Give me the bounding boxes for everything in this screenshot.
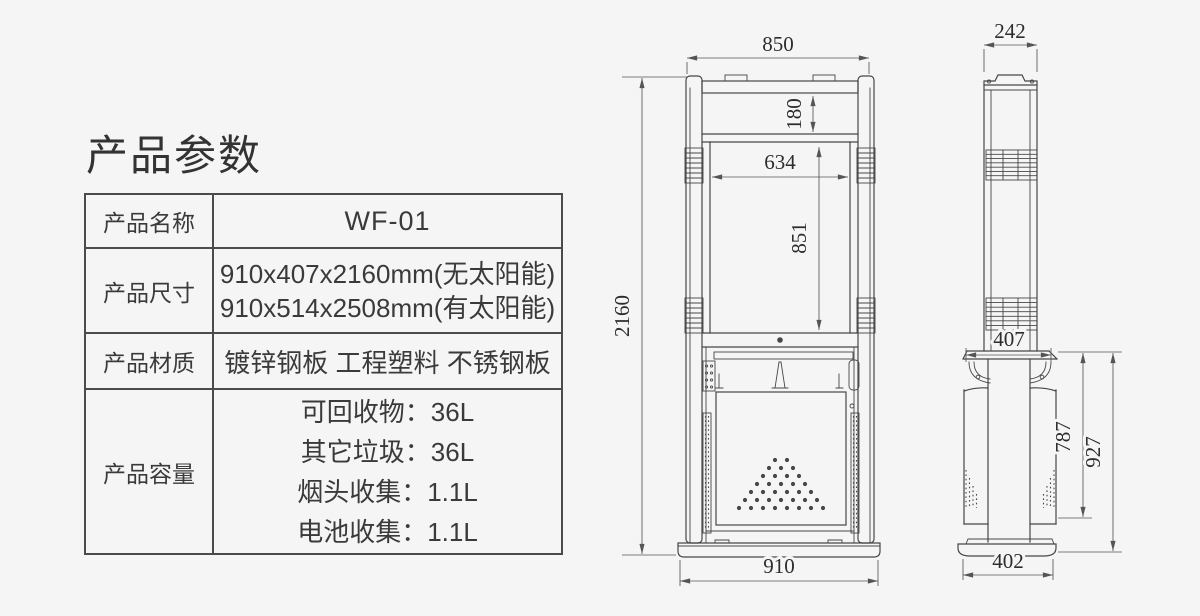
technical-drawing: 850 180 634 851 2160 910 <box>600 0 1200 616</box>
perforation-strip-left <box>966 470 977 508</box>
spec-value-capacity-4: 电池收集：1.1L <box>218 512 557 552</box>
side-dimensions: 242 407 787 927 402 <box>963 19 1122 580</box>
vent-slats-side <box>986 150 1037 330</box>
dim-top-depth: 242 <box>994 19 1026 43</box>
table-row-name: 产品名称 WF-01 <box>85 194 562 248</box>
page-title: 产品参数 <box>86 122 262 183</box>
spec-label-material: 产品材质 <box>85 333 213 389</box>
latch-bracket <box>772 362 788 388</box>
spec-table: 产品名称 WF-01 产品尺寸 910x407x2160mm(无太阳能) 910… <box>84 193 563 555</box>
spec-sheet-page: 产品参数 产品名称 WF-01 产品尺寸 910x407x2160mm(无太阳能… <box>0 0 1200 616</box>
table-row-capacity: 产品容量 可回收物：36L 其它垃圾：36L 烟头收集：1.1L 电池收集：1.… <box>85 389 562 554</box>
bracket-right <box>1030 362 1051 383</box>
perforation-strip-right <box>1044 470 1055 508</box>
dim-bin-height: 787 <box>1051 421 1075 453</box>
side-view: 242 407 787 927 402 <box>958 19 1122 580</box>
lock-icon <box>777 337 783 343</box>
dim-lower-height: 927 <box>1081 436 1105 468</box>
table-row-size: 产品尺寸 910x407x2160mm(无太阳能) 910x514x2508mm… <box>85 248 562 333</box>
spec-value-size-1: 910x407x2160mm(无太阳能) <box>218 257 557 291</box>
dim-screen-height: 851 <box>787 222 811 254</box>
perforation-triangle <box>737 458 825 510</box>
button-dot <box>850 404 854 408</box>
dim-base-width: 910 <box>763 554 795 578</box>
dim-base-depth: 402 <box>992 549 1024 573</box>
dim-body-depth: 407 <box>993 327 1025 351</box>
dim-screen-width: 634 <box>764 150 796 174</box>
table-row-material: 产品材质 镀锌钢板 工程塑料 不锈钢板 <box>85 333 562 389</box>
spec-label-capacity: 产品容量 <box>85 389 213 554</box>
hinge-plate <box>703 361 715 391</box>
front-dimensions: 850 180 634 851 2160 910 <box>610 32 878 586</box>
spec-value-name: WF-01 <box>218 206 557 237</box>
dim-total-height: 2160 <box>610 295 634 337</box>
bracket-left <box>969 362 990 383</box>
vent-slats-front <box>685 148 875 333</box>
spec-value-capacity-3: 烟头收集：1.1L <box>218 472 557 512</box>
spec-label-size: 产品尺寸 <box>85 248 213 333</box>
spec-label-name: 产品名称 <box>85 194 213 248</box>
spec-value-size-2: 910x514x2508mm(有太阳能) <box>218 291 557 325</box>
front-door <box>716 392 846 525</box>
front-view: 850 180 634 851 2160 910 <box>610 32 880 586</box>
spec-value-material: 镀锌钢板 工程塑料 不锈钢板 <box>218 343 557 380</box>
dim-header-height: 180 <box>782 98 806 130</box>
dim-top-width: 850 <box>762 32 794 56</box>
spec-value-capacity-2: 其它垃圾：36L <box>218 432 557 472</box>
spec-value-capacity-1: 可回收物：36L <box>218 392 557 432</box>
